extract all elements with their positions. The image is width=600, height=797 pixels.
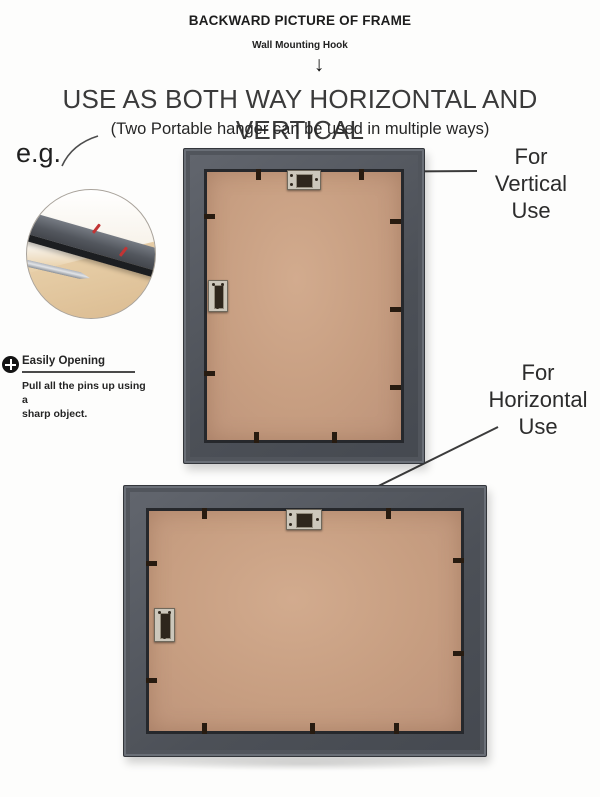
hanger-screw	[289, 523, 292, 526]
wall-hanger-icon-horizontal-use	[286, 509, 322, 530]
instruction-sheet: BACKWARD PICTURE OF FRAME Wall Mounting …	[0, 0, 600, 797]
hanger-slot	[214, 285, 224, 309]
callout-line: Use	[472, 197, 590, 224]
horizontal-frame-backboard	[146, 508, 464, 734]
hanger-slot	[296, 513, 314, 529]
hanger-screw	[316, 518, 319, 521]
easily-opening-body-line: sharp object.	[22, 407, 146, 421]
wall-hanger-icon-vertical-use	[287, 170, 321, 190]
plus-icon	[2, 356, 19, 373]
wall-hanger-icon-side	[154, 608, 175, 642]
callout-vertical-use: For Vertical Use	[472, 143, 590, 224]
frame-pin	[256, 169, 261, 180]
hanger-screw	[158, 611, 161, 614]
callout-line: For	[472, 143, 590, 170]
page-subtitle: Wall Mounting Hook	[0, 40, 600, 51]
frame-back-horizontal	[123, 485, 487, 757]
callout-line: Horizontal	[478, 386, 598, 413]
frame-pin	[204, 214, 215, 219]
frame-pin	[332, 432, 337, 443]
frame-pin	[146, 678, 157, 683]
hanger-screw	[315, 178, 318, 181]
frame-pin	[310, 723, 315, 734]
frame-pin	[390, 307, 401, 312]
frame-pin	[254, 432, 259, 443]
frame-shadow	[150, 757, 460, 771]
example-label: e.g.	[16, 138, 61, 169]
hanger-screw	[290, 183, 293, 186]
callout-line: Vertical	[472, 170, 590, 197]
frame-back-vertical	[183, 148, 425, 464]
hanger-screw	[289, 513, 292, 516]
callout-line: For	[478, 359, 598, 386]
hanger-screw	[221, 283, 224, 286]
wall-hanger-icon-side	[208, 280, 228, 312]
frame-pin	[390, 385, 401, 390]
frame-pin	[394, 723, 399, 734]
hanger-slot	[296, 174, 313, 189]
callout-line: Use	[478, 413, 598, 440]
down-arrow-icon: ↓	[19, 53, 600, 77]
subheadline: (Two Portable hanger can be used in mult…	[0, 120, 600, 139]
hanger-screw	[163, 636, 166, 639]
frame-pin	[386, 508, 391, 519]
easily-opening-body-line: Pull all the pins up using a	[22, 379, 146, 407]
hanger-slot	[160, 613, 171, 638]
page-title: BACKWARD PICTURE OF FRAME	[0, 13, 600, 28]
easily-opening-title: Easily Opening	[22, 355, 135, 373]
frame-pin	[202, 723, 207, 734]
easily-opening-body: Pull all the pins up using a sharp objec…	[22, 379, 146, 422]
frame-pin	[453, 558, 464, 563]
hanger-screw	[212, 283, 215, 286]
inset-photo-easily-opening	[26, 189, 156, 319]
frame-pin	[390, 219, 401, 224]
frame-pin	[204, 371, 215, 376]
frame-pin	[453, 651, 464, 656]
frame-pin	[359, 169, 364, 180]
frame-pin	[202, 508, 207, 519]
hanger-screw	[168, 611, 171, 614]
hanger-screw	[290, 174, 293, 177]
callout-horizontal-use: For Horizontal Use	[478, 359, 598, 440]
vertical-frame-backboard	[204, 169, 404, 443]
frame-pin	[146, 561, 157, 566]
